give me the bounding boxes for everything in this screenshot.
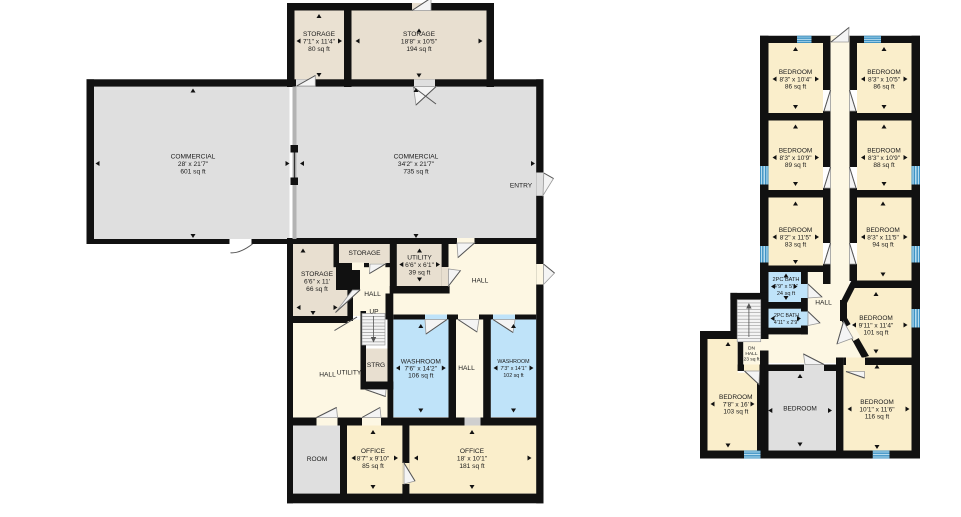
svg-text:2PC BATH: 2PC BATH xyxy=(773,277,800,283)
svg-text:9'11" x 11'4": 9'11" x 11'4" xyxy=(859,322,894,329)
svg-text:4'11" x 2'9": 4'11" x 2'9" xyxy=(774,320,799,326)
svg-text:COMMERCIAL: COMMERCIAL xyxy=(171,153,216,160)
svg-text:HALL: HALL xyxy=(815,300,832,307)
svg-text:ENTRY: ENTRY xyxy=(510,183,533,190)
svg-text:2PC BATH: 2PC BATH xyxy=(774,313,799,319)
svg-text:8'3" x 11'5": 8'3" x 11'5" xyxy=(867,234,899,241)
svg-text:STORAGE: STORAGE xyxy=(348,250,381,257)
svg-text:DN: DN xyxy=(748,346,756,352)
svg-text:STRG: STRG xyxy=(367,362,385,369)
svg-text:106 sq ft: 106 sq ft xyxy=(408,372,433,379)
svg-text:7'1" x 11'4": 7'1" x 11'4" xyxy=(303,38,336,45)
svg-text:BEDROOM: BEDROOM xyxy=(860,399,894,406)
svg-text:BEDROOM: BEDROOM xyxy=(859,315,893,322)
svg-text:39 sq ft: 39 sq ft xyxy=(409,269,431,276)
svg-text:18' x 10'1": 18' x 10'1" xyxy=(457,455,488,462)
svg-text:BEDROOM: BEDROOM xyxy=(867,69,901,76)
svg-text:WASHROOM: WASHROOM xyxy=(497,359,529,365)
svg-text:HALL: HALL xyxy=(458,365,475,372)
svg-text:6'6" x 11': 6'6" x 11' xyxy=(304,278,330,285)
svg-text:103 sq ft: 103 sq ft xyxy=(723,409,748,416)
svg-text:UTILITY: UTILITY xyxy=(337,370,362,377)
svg-text:7'6" x 14'2": 7'6" x 14'2" xyxy=(405,365,438,372)
svg-text:23 sq ft: 23 sq ft xyxy=(743,356,760,362)
svg-text:OFFICE: OFFICE xyxy=(460,448,485,455)
svg-text:WASHROOM: WASHROOM xyxy=(401,358,441,365)
svg-text:83 sq ft: 83 sq ft xyxy=(785,242,807,249)
svg-text:102 sq ft: 102 sq ft xyxy=(503,373,524,379)
svg-text:8'3" x 10'9": 8'3" x 10'9" xyxy=(779,155,812,162)
svg-text:BEDROOM: BEDROOM xyxy=(779,147,813,154)
svg-text:66 sq ft: 66 sq ft xyxy=(306,286,328,293)
svg-text:28' x 21'7": 28' x 21'7" xyxy=(178,161,209,168)
svg-text:101 sq ft: 101 sq ft xyxy=(864,330,889,337)
svg-text:HALL: HALL xyxy=(364,291,381,298)
svg-text:BEDROOM: BEDROOM xyxy=(779,227,813,234)
svg-text:HALL: HALL xyxy=(745,351,758,357)
svg-text:8'3" x 10'5": 8'3" x 10'5" xyxy=(868,76,901,83)
svg-text:116 sq ft: 116 sq ft xyxy=(865,414,890,421)
svg-text:86 sq ft: 86 sq ft xyxy=(873,84,895,91)
svg-text:85 sq ft: 85 sq ft xyxy=(362,463,384,470)
svg-text:ROOM: ROOM xyxy=(307,456,328,463)
svg-text:BEDROOM: BEDROOM xyxy=(783,406,817,413)
svg-text:88 sq ft: 88 sq ft xyxy=(873,162,895,169)
svg-text:80 sq ft: 80 sq ft xyxy=(308,46,330,53)
svg-text:BEDROOM: BEDROOM xyxy=(779,69,813,76)
svg-text:STORAGE: STORAGE xyxy=(303,31,336,38)
svg-text:8'3" x 10'4": 8'3" x 10'4" xyxy=(779,76,812,83)
svg-text:OFFICE: OFFICE xyxy=(361,448,386,455)
svg-text:6'6" x 6'1": 6'6" x 6'1" xyxy=(405,262,434,269)
svg-text:STORAGE: STORAGE xyxy=(301,271,334,278)
svg-text:HALL: HALL xyxy=(472,278,489,285)
svg-text:181 sq ft: 181 sq ft xyxy=(459,463,484,470)
svg-text:8'2" x 11'5": 8'2" x 11'5" xyxy=(780,234,812,241)
svg-text:94 sq ft: 94 sq ft xyxy=(872,242,894,249)
svg-text:7'8" x 16': 7'8" x 16' xyxy=(723,401,749,408)
svg-text:BEDROOM: BEDROOM xyxy=(719,394,753,401)
svg-text:7'3" x 14'1": 7'3" x 14'1" xyxy=(500,366,526,372)
svg-text:HALL: HALL xyxy=(319,372,336,379)
svg-text:10'1" x 11'6": 10'1" x 11'6" xyxy=(859,406,895,413)
svg-text:18'8" x 10'5": 18'8" x 10'5" xyxy=(401,38,438,45)
svg-text:34'2" x 21'7": 34'2" x 21'7" xyxy=(398,161,435,168)
svg-text:BEDROOM: BEDROOM xyxy=(867,147,901,154)
svg-text:8'3" x 10'9": 8'3" x 10'9" xyxy=(868,155,901,162)
svg-text:735 sq ft: 735 sq ft xyxy=(403,168,428,175)
svg-text:BEDROOM: BEDROOM xyxy=(866,227,900,234)
svg-text:UTILITY: UTILITY xyxy=(407,254,432,261)
svg-text:89 sq ft: 89 sq ft xyxy=(785,162,807,169)
svg-text:8'7" x 9'10": 8'7" x 9'10" xyxy=(357,455,390,462)
svg-text:COMMERCIAL: COMMERCIAL xyxy=(394,153,439,160)
svg-text:86 sq ft: 86 sq ft xyxy=(785,84,807,91)
svg-text:UP: UP xyxy=(369,309,379,316)
svg-text:194 sq ft: 194 sq ft xyxy=(406,46,431,53)
svg-text:601 sq ft: 601 sq ft xyxy=(180,168,205,175)
